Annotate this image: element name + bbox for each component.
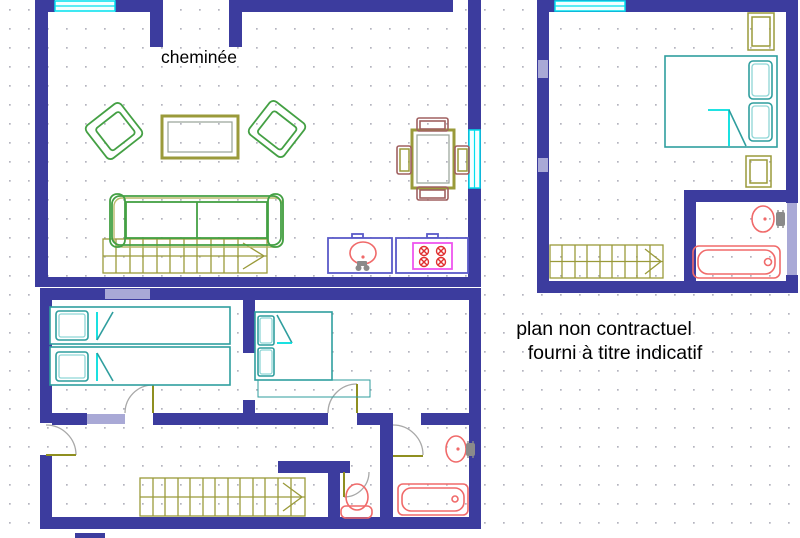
window-right-living xyxy=(469,130,480,188)
basin-faucet xyxy=(776,210,785,228)
floor-plan-page: cheminée xyxy=(0,0,800,538)
floor-plan-drawing: cheminée xyxy=(0,0,800,538)
corridor-wall xyxy=(52,413,87,425)
fireplace-chimney-right-stub xyxy=(229,0,242,47)
window-top-living xyxy=(55,1,115,11)
single-bed-1 xyxy=(50,307,230,344)
wc-wall-horizontal xyxy=(278,461,350,473)
bathroom-wall-vertical xyxy=(684,190,696,281)
wc-bathroom-divider-wall xyxy=(380,425,393,517)
bathroom-wall-horizontal xyxy=(684,190,798,202)
basin-faucet xyxy=(466,441,475,458)
disclaimer-line2: fourni à titre indicatif xyxy=(528,342,703,364)
window-top-bedroom xyxy=(555,1,625,11)
fireplace-label: cheminée xyxy=(161,47,237,67)
wc-wall-vertical xyxy=(328,473,340,517)
double-bed-lower xyxy=(255,312,332,380)
double-bed-upper xyxy=(665,56,777,147)
disclaimer-line1: plan non contractuel xyxy=(516,318,692,340)
single-bed-2 xyxy=(50,347,230,385)
bedroom-divider-wall xyxy=(243,300,255,353)
fireplace-chimney-left-stub xyxy=(150,0,163,47)
kitchen-sink-counter xyxy=(328,234,392,273)
cooktop-counter xyxy=(396,234,468,273)
